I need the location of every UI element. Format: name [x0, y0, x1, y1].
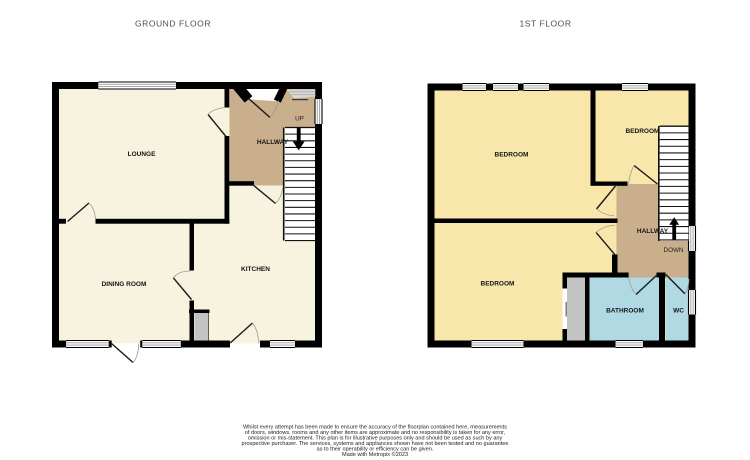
svg-text:BEDROOM: BEDROOM [626, 128, 660, 135]
svg-text:Made with Metropix ©2023: Made with Metropix ©2023 [342, 451, 408, 458]
svg-text:1ST FLOOR: 1ST FLOOR [519, 18, 571, 28]
svg-text:GROUND FLOOR: GROUND FLOOR [135, 18, 211, 28]
svg-text:BEDROOM: BEDROOM [481, 280, 515, 287]
svg-text:BATHROOM: BATHROOM [606, 308, 644, 315]
svg-text:DINING ROOM: DINING ROOM [102, 281, 147, 288]
svg-text:WC: WC [673, 308, 684, 315]
svg-text:DOWN: DOWN [664, 247, 684, 254]
svg-text:KITCHEN: KITCHEN [241, 266, 270, 273]
svg-text:HALLWAY: HALLWAY [257, 139, 289, 146]
svg-text:LOUNGE: LOUNGE [128, 151, 156, 158]
svg-text:HALLWAY: HALLWAY [637, 228, 669, 235]
svg-text:BEDROOM: BEDROOM [495, 151, 529, 158]
svg-text:UP: UP [295, 115, 304, 122]
